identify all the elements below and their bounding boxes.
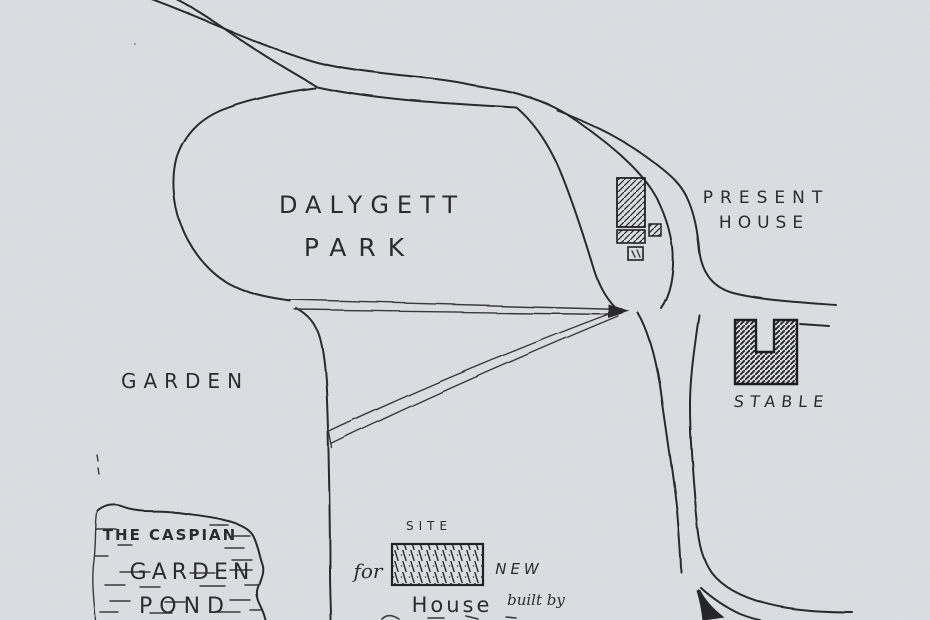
park-label-line1: DALYGETT xyxy=(279,191,465,219)
site-for-new-house xyxy=(392,544,483,585)
hand-drawn-estate-map: DALYGETT PARK PRESENT HOUSE GARDEN STABL… xyxy=(0,0,930,620)
outbuilding-small-1 xyxy=(649,224,661,236)
park-label-line2: PARK xyxy=(304,233,416,262)
site-label: SITE xyxy=(406,519,452,533)
site-new-label: NEW xyxy=(495,560,543,578)
site-built-by-label: built by xyxy=(507,591,565,609)
site-for-label: for xyxy=(351,559,383,583)
stable-label: STABLE xyxy=(733,392,831,411)
pond-label-line1: THE CASPIAN xyxy=(103,526,237,544)
pond-label-line2: GARDEN xyxy=(130,560,255,585)
garden-label: GARDEN xyxy=(121,369,249,393)
present-house-label-line2: HOUSE xyxy=(719,213,809,233)
map-canvas: DALYGETT PARK PRESENT HOUSE GARDEN STABL… xyxy=(0,0,930,620)
site-house-label: House xyxy=(412,593,493,617)
pond-label-line3: POND xyxy=(139,594,231,619)
present-house-label-line1: PRESENT xyxy=(703,188,829,208)
